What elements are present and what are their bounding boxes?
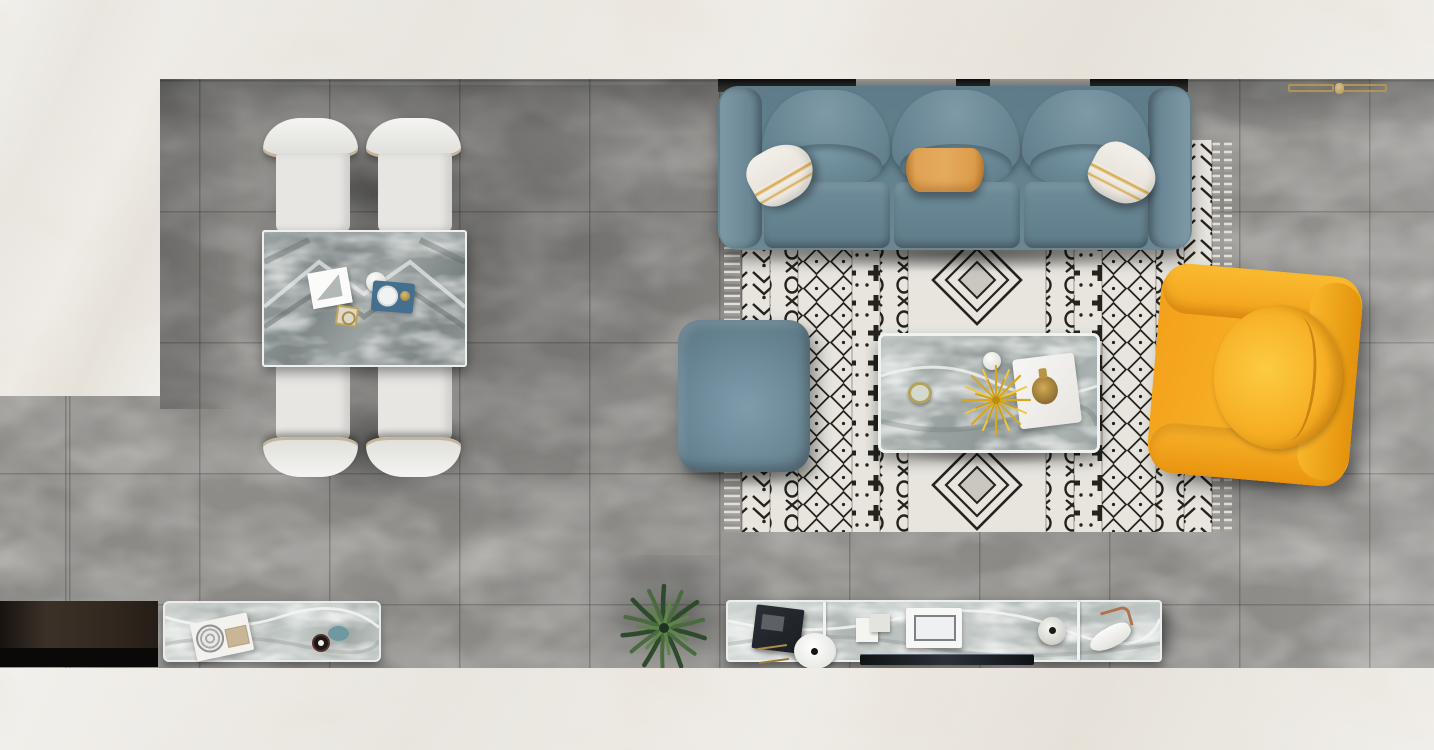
- dining-chair-seat: [276, 362, 350, 441]
- sofa-arm-right: [1148, 88, 1190, 248]
- dining-chair-seat: [378, 153, 452, 233]
- blue-tray: [371, 280, 415, 314]
- ottoman: [678, 320, 810, 472]
- armchair: [1145, 262, 1365, 489]
- gold-ornament: [400, 291, 411, 302]
- white-floor-bottom: [0, 668, 1434, 750]
- cabinet-top: [0, 601, 158, 648]
- dark-cabinet: [0, 601, 158, 667]
- dining-chair-back: [366, 118, 461, 158]
- cabinet-base: [0, 648, 158, 667]
- tv-panel: [860, 654, 1034, 665]
- white-sculpture: [856, 614, 890, 644]
- green-dish: [908, 382, 932, 404]
- dark-cup: [312, 634, 330, 652]
- white-marble-texture: [0, 668, 1434, 750]
- dining-chair-back: [263, 118, 358, 158]
- beige-box: [224, 625, 249, 648]
- magazine: [307, 267, 353, 309]
- photo-frame: [906, 608, 962, 648]
- gold-rack-knob: [1335, 83, 1344, 94]
- dining-table: [262, 230, 467, 367]
- room-top-view: [0, 0, 1434, 750]
- palm-plant: [612, 576, 716, 680]
- dining-chair-seat: [276, 153, 350, 233]
- orange-pillow: [906, 148, 984, 192]
- gold-decanter: [1030, 375, 1059, 406]
- plate: [376, 285, 399, 308]
- white-marble-texture: [0, 0, 160, 396]
- round-vase: [1038, 617, 1066, 645]
- gold-wall-rack: [1288, 81, 1392, 97]
- white-floor-left: [0, 0, 160, 396]
- sofa: [718, 82, 1192, 254]
- gold-rack-bar: [1288, 84, 1334, 92]
- teal-dish: [328, 626, 349, 641]
- round-speaker: [794, 633, 836, 669]
- dining-table-marble: [264, 232, 465, 365]
- white-marble-texture: [0, 0, 1434, 79]
- sculpture-block: [870, 614, 890, 632]
- gold-dish: [335, 305, 360, 328]
- console-divider: [1077, 602, 1080, 660]
- patterned-plate: [193, 622, 226, 655]
- white-floor-top: [0, 0, 1434, 79]
- gold-rack-bar: [1341, 84, 1387, 92]
- dining-chair-seat: [378, 362, 452, 441]
- yellow-plant: [958, 362, 1034, 438]
